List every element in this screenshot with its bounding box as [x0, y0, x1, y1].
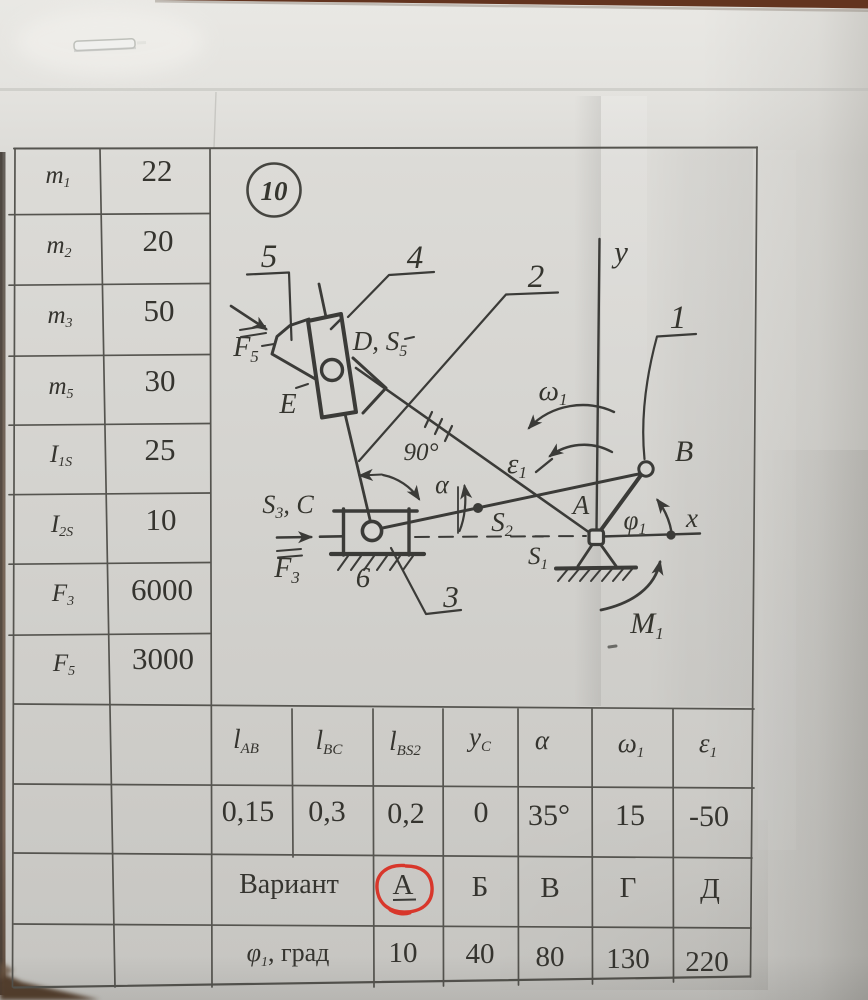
svg-text:2: 2 — [528, 259, 545, 295]
svg-text:α: α — [435, 470, 450, 499]
svg-text:D, S5: D, S5 — [352, 326, 408, 360]
svg-text:35°: 35° — [528, 799, 570, 832]
svg-text:130: 130 — [606, 943, 650, 975]
svg-text:0,15: 0,15 — [222, 795, 275, 828]
svg-text:Вариант: Вариант — [239, 869, 339, 900]
svg-text:1: 1 — [670, 300, 687, 336]
svg-text:0,3: 0,3 — [308, 795, 346, 828]
svg-text:30: 30 — [145, 363, 176, 398]
svg-text:20: 20 — [143, 223, 174, 258]
svg-text:5: 5 — [261, 239, 278, 275]
svg-text:3000: 3000 — [132, 641, 194, 676]
svg-text:A: A — [571, 490, 590, 520]
svg-text:α: α — [535, 725, 550, 755]
svg-text:B: B — [675, 435, 693, 468]
svg-text:22: 22 — [142, 153, 173, 188]
svg-text:S3, C: S3, C — [262, 490, 314, 522]
svg-text:0,2: 0,2 — [387, 797, 425, 830]
svg-text:4: 4 — [407, 240, 424, 276]
svg-text:6000: 6000 — [131, 572, 193, 607]
svg-text:y: y — [611, 234, 628, 269]
svg-text:А: А — [393, 869, 414, 901]
svg-text:3: 3 — [442, 579, 459, 614]
svg-text:15: 15 — [615, 799, 645, 832]
svg-text:φ1, град: φ1, град — [247, 938, 330, 970]
svg-text:Д: Д — [700, 873, 720, 905]
svg-text:220: 220 — [685, 946, 729, 978]
svg-text:90°: 90° — [404, 439, 439, 466]
svg-text:10: 10 — [146, 502, 177, 537]
svg-text:10: 10 — [389, 937, 418, 969]
svg-text:0: 0 — [474, 796, 489, 829]
svg-text:x: x — [685, 503, 698, 533]
svg-text:80: 80 — [536, 941, 565, 973]
svg-text:50: 50 — [144, 293, 175, 328]
svg-text:25: 25 — [145, 432, 176, 467]
svg-text:Б: Б — [472, 871, 489, 903]
svg-text:6: 6 — [356, 562, 371, 594]
svg-text:В: В — [540, 872, 559, 904]
svg-text:40: 40 — [466, 938, 495, 970]
svg-text:E: E — [278, 389, 296, 420]
svg-text:Г: Г — [620, 872, 637, 904]
svg-text:-50: -50 — [689, 800, 729, 833]
svg-text:10: 10 — [261, 176, 289, 206]
